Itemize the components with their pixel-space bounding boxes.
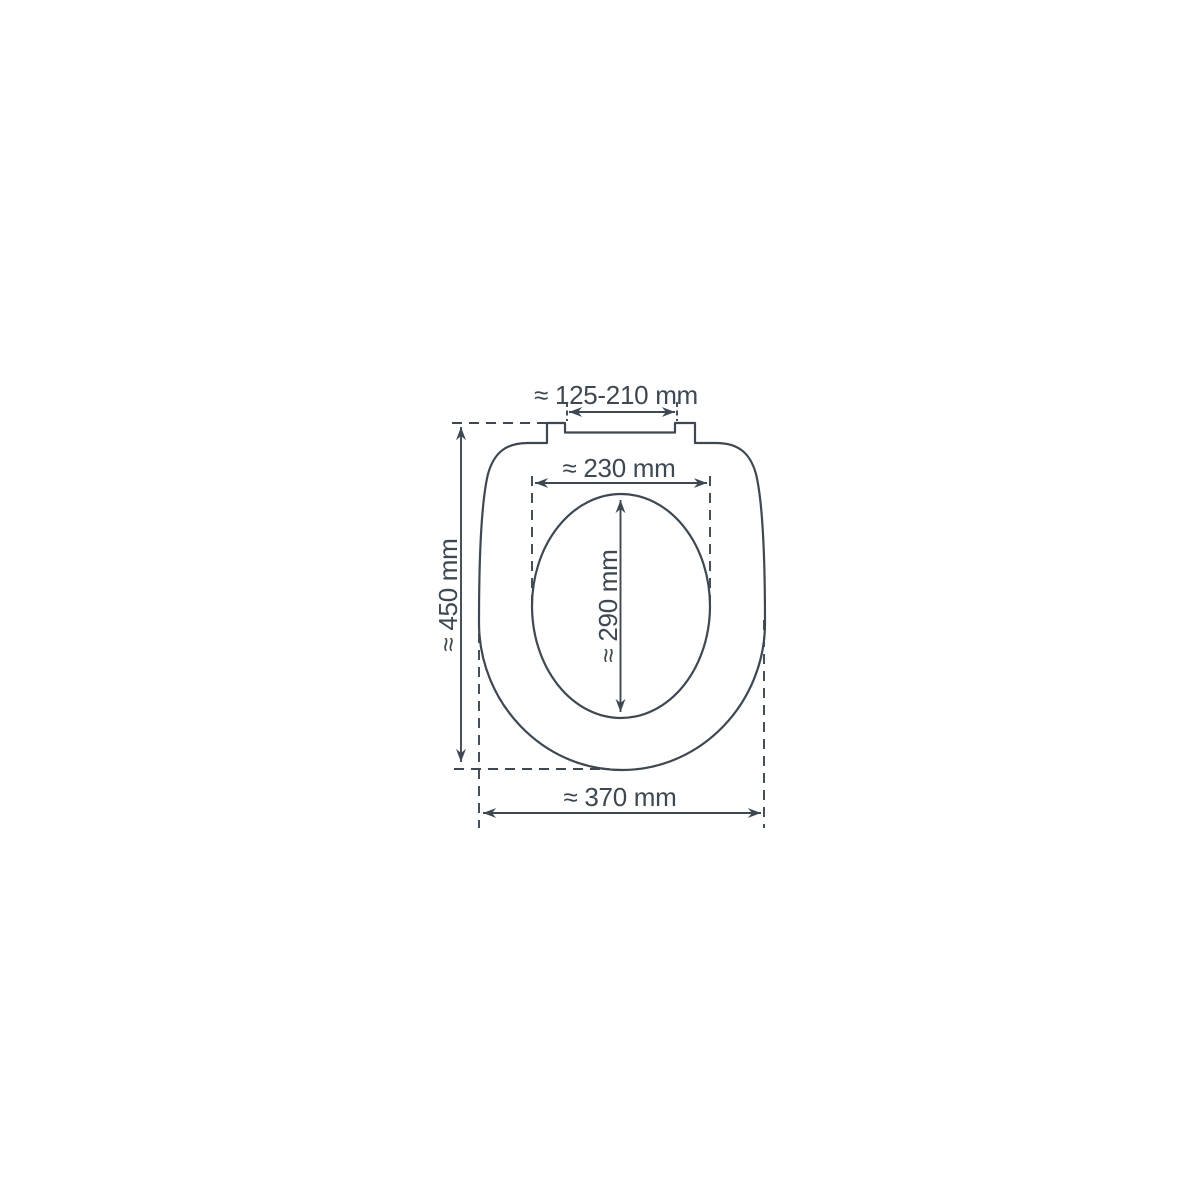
dimension-diagram-canvas: ≈ 125-210 mm ≈ 230 mm ≈ 290 mm ≈ 450 mm …: [0, 0, 1200, 1200]
toilet-seat-diagram: ≈ 125-210 mm ≈ 230 mm ≈ 290 mm ≈ 450 mm …: [0, 0, 1200, 1200]
inner-length-label: ≈ 290 mm: [593, 549, 623, 662]
total-width-label: ≈ 370 mm: [563, 782, 676, 812]
total-length-label: ≈ 450 mm: [433, 538, 463, 651]
inner-width-label: ≈ 230 mm: [562, 453, 675, 483]
hinge-width-label: ≈ 125-210 mm: [534, 380, 698, 410]
